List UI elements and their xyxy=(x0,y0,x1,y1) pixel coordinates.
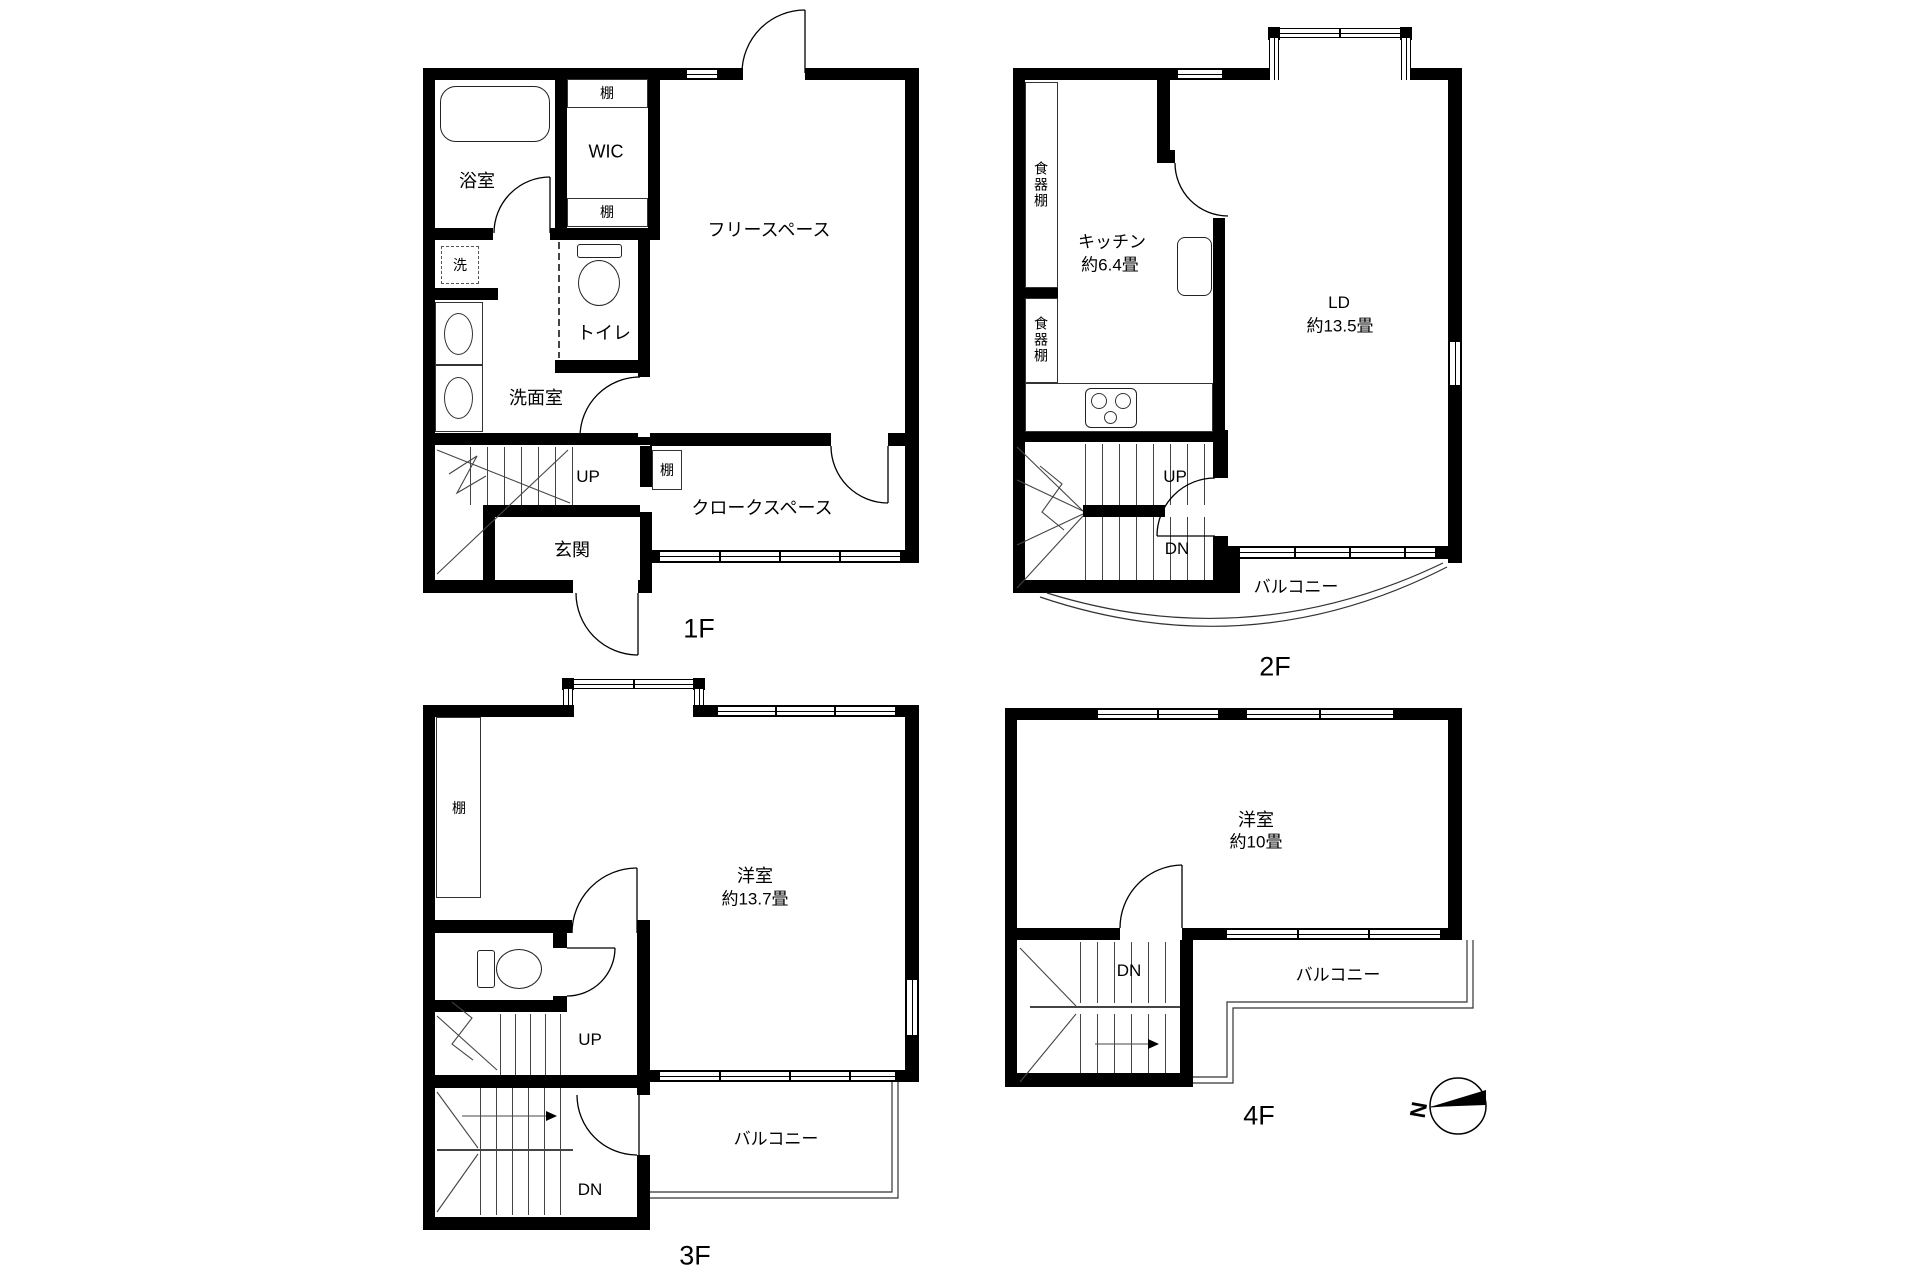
room-label-free-space: フリースペース xyxy=(708,216,831,242)
stairs-3f-dn xyxy=(480,1088,573,1215)
room-label-powder: 洗面室 xyxy=(509,384,563,410)
stairs-4f-lower xyxy=(1080,1014,1180,1073)
window-1f-top xyxy=(687,69,717,79)
room-label-shelf-cloak: 棚 xyxy=(660,460,674,480)
label-up-2f: UP xyxy=(1163,467,1187,487)
room-label-kitchen: キッチン xyxy=(1078,228,1146,253)
room-label-cupboard-top: 食器棚 xyxy=(1031,161,1051,209)
room-label-shelf-top: 棚 xyxy=(600,83,614,103)
window-2f-right xyxy=(1449,342,1461,385)
burner-2 xyxy=(1115,393,1131,409)
toilet-sliding-door-1f xyxy=(558,242,560,358)
room-label-cloak: クロークスペース xyxy=(691,494,832,520)
burner-1 xyxy=(1091,393,1107,409)
room-label-balcony-2f: バルコニー xyxy=(1254,573,1339,598)
room-label-entrance: 玄関 xyxy=(554,536,590,562)
room-label-balcony-4f: バルコニー xyxy=(1296,961,1381,986)
kitchen-sink xyxy=(1177,237,1212,296)
stair-lines-2f xyxy=(1017,447,1083,588)
room-label-wic: WIC xyxy=(589,142,624,163)
floor-label-1f: 1F xyxy=(683,614,715,645)
room-label-balcony-3f: バルコニー xyxy=(734,1125,819,1150)
room-label-kitchen-size: 約6.4畳 xyxy=(1081,251,1139,276)
basin-2 xyxy=(444,377,473,419)
label-up-1f: UP xyxy=(576,467,600,487)
floor-label-3f: 3F xyxy=(679,1241,711,1272)
bay-window-2f-right xyxy=(1401,38,1411,80)
stairs-1f xyxy=(470,447,573,505)
floor-label-2f: 2F xyxy=(1259,652,1291,683)
floor-plan-canvas: 浴室 棚 WIC 棚 洗 トイレ 洗面室 フリースペース UP 玄関 棚 クロー… xyxy=(0,0,1920,1280)
toilet-tank-3f xyxy=(477,950,495,988)
window-3f-balcony xyxy=(660,1071,895,1081)
window-3f-top xyxy=(718,706,895,716)
room-label-room-3f-size: 約13.7畳 xyxy=(721,885,788,910)
window-2f-top xyxy=(1178,69,1222,79)
door-arcs-4f xyxy=(1120,865,1182,928)
room-label-ld: LD xyxy=(1328,293,1350,313)
label-dn-3f: DN xyxy=(578,1180,603,1200)
stairs-2f-lower xyxy=(1085,517,1213,580)
room-label-laundry: 洗 xyxy=(453,255,467,275)
window-4f-balcony xyxy=(1227,929,1440,939)
floor-label-4f: 4F xyxy=(1243,1101,1275,1132)
room-label-room-4f-size: 約10畳 xyxy=(1230,828,1283,853)
room-label-shelf-mid: 棚 xyxy=(600,202,614,222)
toilet-bowl-3f xyxy=(496,949,542,989)
label-up-3f: UP xyxy=(578,1030,602,1050)
compass-north-label: N xyxy=(1405,1100,1433,1120)
bay-window-3f-left xyxy=(563,689,573,705)
bathtub xyxy=(440,86,550,142)
room-label-bath: 浴室 xyxy=(459,167,495,193)
room-label-cupboard-bottom: 食器棚 xyxy=(1031,316,1051,364)
burner-3 xyxy=(1104,411,1117,424)
door-arcs-3f xyxy=(567,868,639,1155)
room-label-toilet: トイレ xyxy=(577,319,631,345)
label-dn-4f: DN xyxy=(1117,961,1142,981)
label-dn-2f: DN xyxy=(1165,539,1190,559)
toilet-tank-1f xyxy=(577,244,622,258)
stairs-2f-upper xyxy=(1085,444,1213,505)
room-label-shelf-3f: 棚 xyxy=(452,798,466,818)
toilet-bowl-1f xyxy=(578,260,620,306)
bay-window-3f-right xyxy=(694,689,704,705)
window-3f-right xyxy=(906,980,918,1035)
compass-icon xyxy=(1430,1078,1486,1134)
bay-window-2f-left xyxy=(1269,38,1279,80)
basin-1 xyxy=(444,313,473,355)
stairs-3f-up xyxy=(500,1014,573,1075)
room-label-ld-size: 約13.5畳 xyxy=(1306,312,1373,337)
